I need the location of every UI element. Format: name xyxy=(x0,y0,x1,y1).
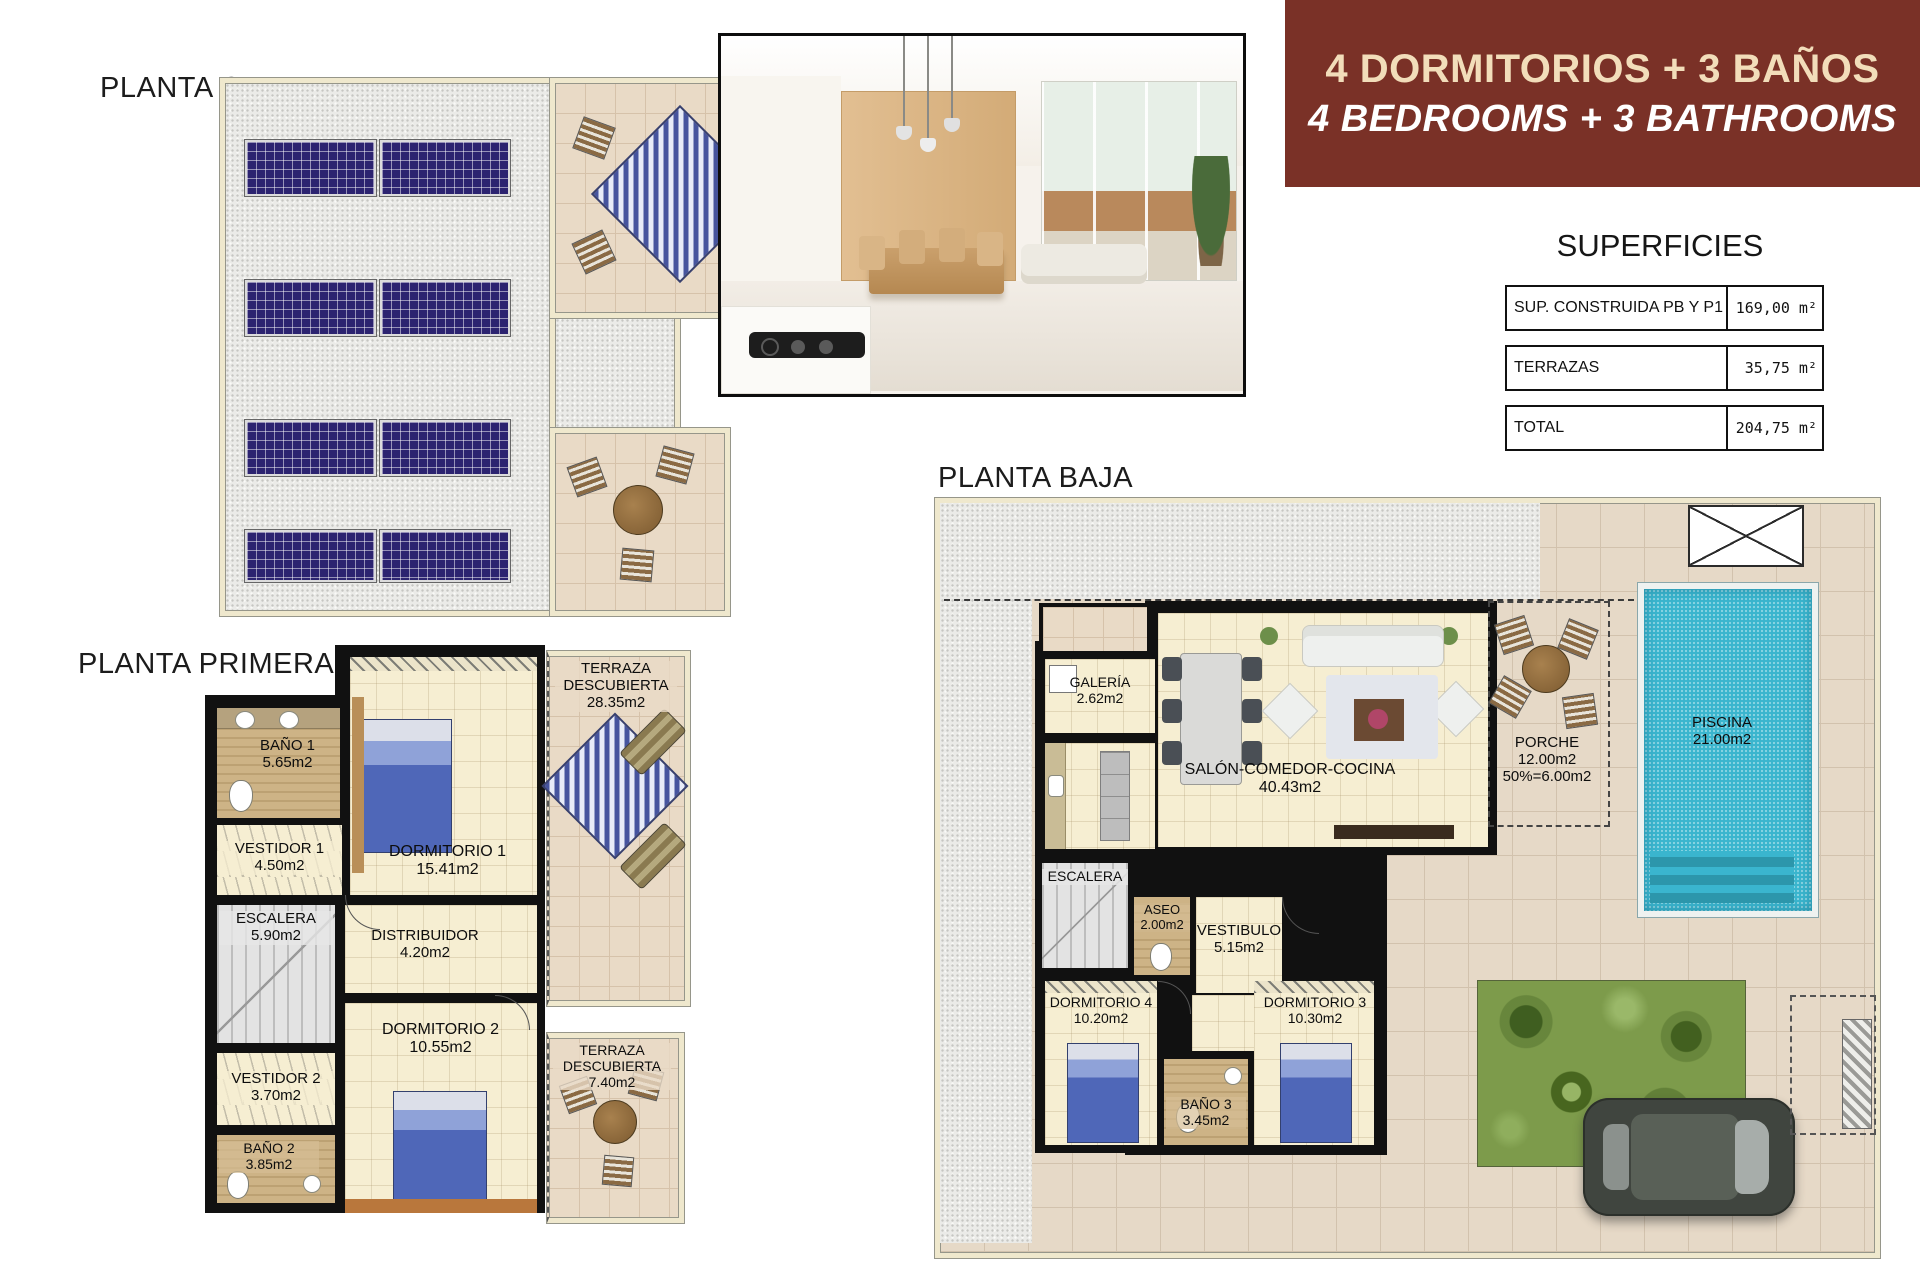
room-area: 12.00m2 xyxy=(1488,752,1606,769)
room-area: 40.43m2 xyxy=(1180,779,1400,797)
banner-line-es: 4 DORMITORIOS + 3 BAÑOS xyxy=(1325,47,1879,92)
room-area: 5.65m2 xyxy=(235,755,340,772)
room-area: 15.41m2 xyxy=(360,861,535,879)
round-table-icon xyxy=(613,485,663,535)
room-label-distribuidor: DISTRIBUIDOR 4.20m2 xyxy=(360,928,490,962)
room-label-bano2: BAÑO 2 3.85m2 xyxy=(219,1141,319,1173)
room-area: 21.00m2 xyxy=(1652,732,1792,749)
window-icon xyxy=(1045,981,1157,993)
sink-icon xyxy=(279,711,299,729)
room-label-galeria: GALERÍA 2.62m2 xyxy=(1047,675,1153,707)
room-label-dormitorio1: DORMITORIO 1 15.41m2 xyxy=(360,843,535,879)
car-windshield xyxy=(1735,1120,1769,1194)
room-name: SALÓN-COMEDOR-COCINA xyxy=(1180,761,1400,779)
room-name: ESCALERA xyxy=(1042,869,1128,885)
sofa-icon xyxy=(1302,625,1444,667)
superficies-row-label: TOTAL xyxy=(1507,419,1726,437)
chair-icon xyxy=(620,548,655,583)
window-icon xyxy=(1254,981,1374,993)
pool-steps xyxy=(1650,851,1794,903)
room-name: PORCHE xyxy=(1488,735,1606,752)
gravel-strip-left xyxy=(940,503,1032,1243)
dining-chairs-left-icon xyxy=(1162,657,1182,681)
solar-panel-row xyxy=(245,530,510,582)
chair-icon xyxy=(655,445,694,484)
solar-panel-icon xyxy=(380,280,511,336)
room-label-vestibulo: VESTIBULO 5.15m2 xyxy=(1192,923,1286,957)
roof-gravel-strip xyxy=(550,308,680,438)
room-label-dormitorio3: DORMITORIO 3 10.30m2 xyxy=(1250,995,1380,1027)
room-name: TERRAZA DESCUBIERTA xyxy=(553,1043,671,1075)
plant-icon xyxy=(1189,156,1233,266)
room-label-dormitorio4: DORMITORIO 4 10.20m2 xyxy=(1038,995,1164,1027)
solar-panel-row xyxy=(245,280,510,336)
solar-panel-row xyxy=(245,140,510,196)
chair-icon xyxy=(1494,615,1534,655)
superficies-row-value: 204,75 m² xyxy=(1726,407,1822,449)
sink-icon xyxy=(1048,775,1064,797)
room-salon xyxy=(1158,613,1488,847)
solar-panel-icon xyxy=(245,420,376,476)
room-label-terraza2: TERRAZA DESCUBIERTA 7.40m2 xyxy=(553,1043,671,1090)
room-label-bano1: BAÑO 1 5.65m2 xyxy=(235,738,340,772)
armchair-icon xyxy=(1262,683,1319,740)
superficies-row-label: TERRAZAS xyxy=(1507,359,1726,377)
chair-icon xyxy=(571,229,616,274)
round-table-icon xyxy=(593,1100,637,1144)
round-table-icon xyxy=(1522,645,1570,693)
bed-icon xyxy=(362,719,452,853)
room-area: 5.90m2 xyxy=(219,928,333,945)
porch-outline xyxy=(1488,601,1610,827)
room-area: 10.20m2 xyxy=(1038,1011,1164,1027)
window-icon xyxy=(350,657,537,671)
car-rear-window xyxy=(1603,1124,1629,1190)
solar-panel-icon xyxy=(245,530,376,582)
toilet-icon xyxy=(229,780,253,812)
roof-terrace-bottom xyxy=(550,428,730,616)
superficies-row: TOTAL 204,75 m² xyxy=(1505,405,1824,451)
superficies-row: SUP. CONSTRUIDA PB Y P1 169,00 m² xyxy=(1505,285,1824,331)
sink-icon xyxy=(235,711,255,729)
toilet-icon xyxy=(227,1171,249,1199)
bed-icon xyxy=(1280,1043,1352,1143)
coffee-table-icon xyxy=(1354,699,1404,741)
room-name: TERRAZA DESCUBIERTA xyxy=(555,661,677,695)
ground-floor-title: PLANTA BAJA xyxy=(938,462,1133,495)
sink-icon xyxy=(303,1175,321,1193)
room-name: BAÑO 3 xyxy=(1166,1097,1246,1113)
room-name: DORMITORIO 3 xyxy=(1250,995,1380,1011)
toilet-icon xyxy=(1150,943,1172,971)
room-name: BAÑO 1 xyxy=(235,738,340,755)
headline-banner: 4 DORMITORIOS + 3 BAÑOS 4 BEDROOMS + 3 B… xyxy=(1285,0,1920,187)
kitchen-island-icon xyxy=(1100,751,1130,841)
room-label-piscina: PISCINA 21.00m2 xyxy=(1652,715,1792,749)
pool xyxy=(1638,583,1818,917)
laundry-terrace xyxy=(1039,603,1151,655)
banner-line-en: 4 BEDROOMS + 3 BATHROOMS xyxy=(1308,98,1897,141)
first-floor-plan: BAÑO 1 5.65m2 VESTIDOR 1 4.50m2 DORMITOR… xyxy=(195,643,690,1218)
solar-panel-icon xyxy=(380,530,511,582)
room-area: 4.20m2 xyxy=(360,945,490,962)
room-name: DORMITORIO 4 xyxy=(1038,995,1164,1011)
room-label-vestidor1: VESTIDOR 1 4.50m2 xyxy=(217,841,342,875)
solar-panel-icon xyxy=(380,140,511,196)
room-label-escalera-p1: ESCALERA 5.90m2 xyxy=(219,911,333,945)
room-label-bano3: BAÑO 3 3.45m2 xyxy=(1166,1097,1246,1129)
room-note: 50%=6.00m2 xyxy=(1488,769,1606,786)
superficies-title: SUPERFICIES xyxy=(1490,228,1830,264)
crossed-box-marker xyxy=(1688,505,1804,567)
pendant-lamp-icon xyxy=(903,36,905,128)
flowers-icon xyxy=(1368,709,1388,729)
chair-icon xyxy=(602,1155,635,1188)
bed-icon xyxy=(393,1091,487,1205)
brochure-page: PLANTA CUBIERTA xyxy=(0,0,1920,1280)
room-label-salon: SALÓN-COMEDOR-COCINA 40.43m2 xyxy=(1180,761,1400,797)
cooktop-icon xyxy=(749,332,865,358)
bed-icon xyxy=(1067,1043,1139,1143)
dining-chairs-right-icon xyxy=(1242,657,1262,681)
room-name: VESTIDOR 2 xyxy=(217,1071,335,1088)
room-name: PISCINA xyxy=(1652,715,1792,732)
car-icon xyxy=(1583,1098,1795,1216)
chair-icon xyxy=(572,116,616,160)
solar-panel-row xyxy=(245,420,510,476)
room-name: VESTIBULO xyxy=(1192,923,1286,940)
room-label-porche: PORCHE 12.00m2 50%=6.00m2 xyxy=(1488,735,1606,786)
solar-panel-icon xyxy=(245,280,376,336)
room-label-escalera-pb: ESCALERA xyxy=(1042,869,1128,885)
room-name: DORMITORIO 1 xyxy=(360,843,535,861)
pendant-lamp-icon xyxy=(927,36,929,140)
room-label-aseo: ASEO 2.00m2 xyxy=(1134,903,1190,932)
superficies-row-label: SUP. CONSTRUIDA PB Y P1 xyxy=(1507,299,1726,317)
sink-icon xyxy=(1224,1067,1242,1085)
dining-table-icon xyxy=(869,248,1004,294)
room-area: 28.35m2 xyxy=(555,695,677,712)
room-area: 10.55m2 xyxy=(353,1039,528,1057)
room-name: DISTRIBUIDOR xyxy=(360,928,490,945)
room-area: 3.70m2 xyxy=(217,1088,335,1105)
room-area: 5.15m2 xyxy=(1192,940,1286,957)
superficies-row: TERRAZAS 35,75 m² xyxy=(1505,345,1824,391)
room-name: BAÑO 2 xyxy=(219,1141,319,1157)
solar-panel-icon xyxy=(245,140,376,196)
cooktop-burner-icon xyxy=(761,338,779,356)
room-area: 10.30m2 xyxy=(1250,1011,1380,1027)
interior-photo xyxy=(718,33,1246,397)
room-kitchen xyxy=(1045,743,1155,849)
pendant-lamp-icon xyxy=(951,36,953,120)
room-area: 2.00m2 xyxy=(1134,918,1190,933)
room-label-terraza1: TERRAZA DESCUBIERTA 28.35m2 xyxy=(555,661,677,712)
room-name: ASEO xyxy=(1134,903,1190,918)
room-area: 3.45m2 xyxy=(1166,1113,1246,1129)
chair-icon xyxy=(566,456,607,497)
room-area: 2.62m2 xyxy=(1047,691,1153,707)
terrace-threshold xyxy=(345,1199,537,1213)
car-roof xyxy=(1631,1114,1739,1200)
dining-chairs-icon xyxy=(859,236,885,270)
solar-panel-icon xyxy=(380,420,511,476)
room-name: GALERÍA xyxy=(1047,675,1153,691)
room-name: VESTIDOR 1 xyxy=(217,841,342,858)
room-area: 3.85m2 xyxy=(219,1157,319,1173)
plant-icon xyxy=(1260,627,1278,645)
room-area: 4.50m2 xyxy=(217,858,342,875)
room-name: ESCALERA xyxy=(219,911,333,928)
sofa-icon xyxy=(1021,244,1147,284)
photo-left-wall xyxy=(721,76,841,286)
gate-hatch xyxy=(1842,1019,1872,1129)
tv-unit-icon xyxy=(1334,825,1454,839)
ground-floor-plan: PISCINA 21.00m2 GALERÍA 2.62m2 xyxy=(935,498,1880,1258)
chair-icon xyxy=(1562,693,1598,729)
room-area: 7.40m2 xyxy=(553,1075,671,1091)
superficies-row-value: 169,00 m² xyxy=(1726,287,1822,329)
room-label-vestidor2: VESTIDOR 2 3.70m2 xyxy=(217,1071,335,1105)
superficies-row-value: 35,75 m² xyxy=(1726,347,1822,389)
